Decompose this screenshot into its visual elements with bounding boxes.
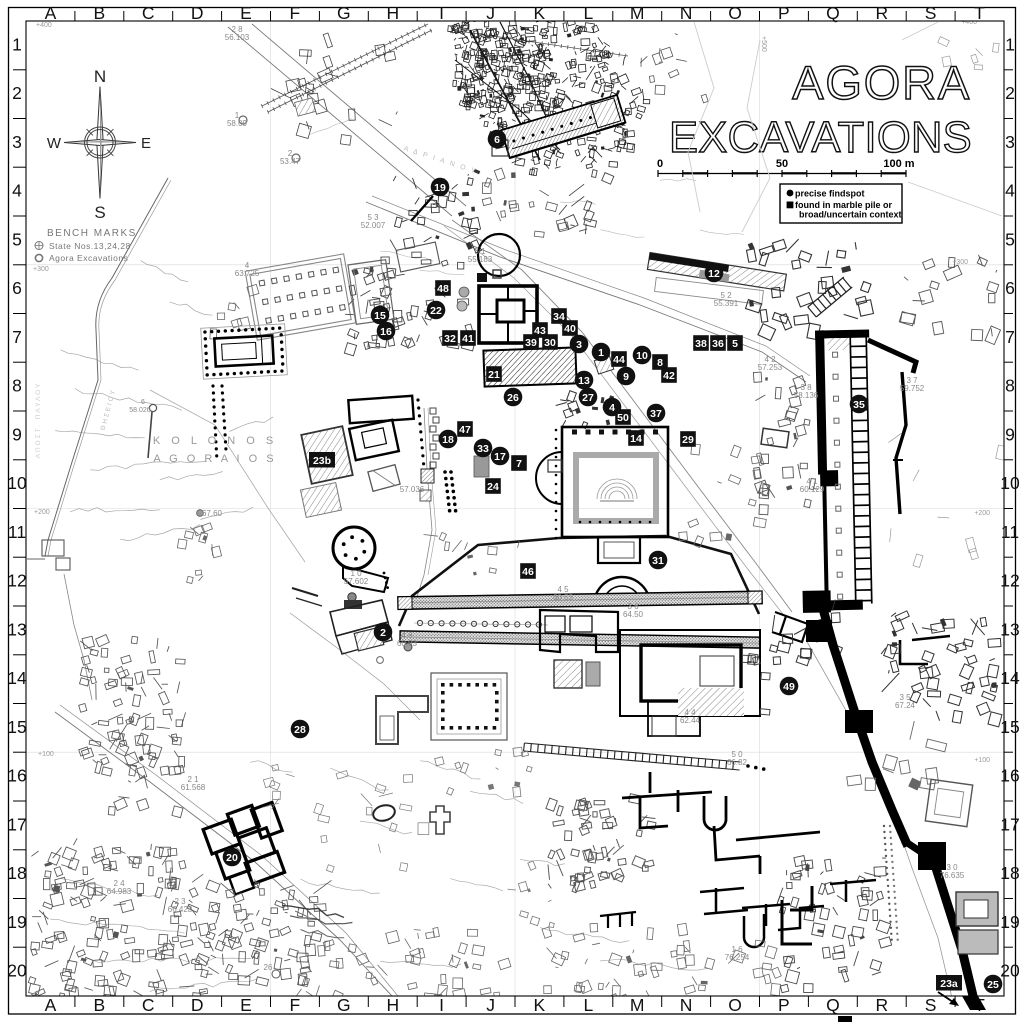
svg-text:4: 4 (609, 402, 615, 414)
svg-text:K O L O N O S: K O L O N O S (153, 435, 277, 447)
svg-text:12: 12 (1000, 571, 1019, 591)
svg-text:57.602: 57.602 (344, 577, 369, 586)
svg-text:E: E (240, 995, 252, 1015)
svg-text:broad/uncertain context: broad/uncertain context (799, 210, 902, 220)
svg-text:3: 3 (576, 339, 582, 351)
svg-text:+100: +100 (974, 757, 990, 764)
svg-text:41: 41 (462, 333, 474, 345)
svg-text:6: 6 (12, 278, 22, 298)
svg-text:67.60: 67.60 (202, 509, 223, 518)
svg-text:7: 7 (516, 458, 522, 470)
svg-text:I: I (439, 995, 444, 1015)
svg-text:23b: 23b (313, 455, 331, 467)
svg-text:16: 16 (1000, 766, 1019, 786)
svg-text:3: 3 (1005, 132, 1015, 152)
svg-text:+400: +400 (36, 22, 52, 29)
svg-text:55.183: 55.183 (468, 255, 493, 264)
svg-text:F: F (290, 3, 301, 23)
svg-text:7: 7 (12, 327, 22, 347)
svg-text:1: 1 (12, 34, 22, 54)
svg-text:+500: +500 (760, 36, 767, 52)
svg-text:A: A (45, 995, 57, 1015)
svg-text:14: 14 (7, 668, 27, 688)
svg-text:found in marble pile or: found in marble pile or (795, 200, 893, 210)
svg-text:46: 46 (522, 566, 534, 578)
svg-text:Q: Q (826, 3, 840, 23)
svg-text:27: 27 (582, 392, 594, 404)
svg-text:T: T (974, 3, 985, 23)
svg-text:63.725: 63.725 (235, 269, 260, 278)
svg-text:M: M (630, 3, 645, 23)
svg-text:D: D (191, 3, 204, 23)
svg-text:6: 6 (494, 134, 500, 146)
svg-text:19: 19 (7, 912, 26, 932)
svg-text:0: 0 (657, 158, 663, 170)
svg-text:18: 18 (442, 434, 454, 446)
svg-text:5: 5 (1005, 229, 1015, 249)
svg-text:4: 4 (1005, 181, 1015, 201)
svg-text:13: 13 (578, 375, 590, 387)
svg-text:A G O R A I O S: A G O R A I O S (153, 453, 276, 465)
svg-text:18: 18 (1000, 863, 1019, 883)
svg-text:D: D (191, 995, 204, 1015)
svg-text:20: 20 (226, 852, 238, 864)
svg-text:33: 33 (477, 443, 489, 455)
svg-text:61.568: 61.568 (181, 783, 206, 792)
svg-text:ΑΠΟΣΤ. ΠΑΥΛΟΥ: ΑΠΟΣΤ. ΠΑΥΛΟΥ (35, 382, 42, 459)
svg-text:+300: +300 (33, 266, 49, 273)
svg-text:S: S (925, 995, 937, 1015)
svg-text:26: 26 (264, 963, 273, 972)
svg-text:2: 2 (1005, 83, 1015, 103)
svg-text:2: 2 (12, 83, 22, 103)
svg-text:A: A (45, 3, 57, 23)
svg-text:20: 20 (1000, 961, 1020, 981)
svg-text:R: R (875, 995, 888, 1015)
svg-text:19: 19 (1000, 912, 1019, 932)
svg-text:+100: +100 (38, 751, 54, 758)
svg-text:20: 20 (7, 961, 27, 981)
svg-text:precise findspot: precise findspot (795, 189, 865, 199)
svg-text:10: 10 (7, 473, 27, 493)
svg-text:K: K (534, 3, 546, 23)
svg-text:22: 22 (430, 305, 442, 317)
svg-text:AGORA: AGORA (792, 56, 971, 109)
svg-text:37: 37 (650, 408, 662, 420)
svg-text:F: F (290, 995, 301, 1015)
svg-text:47: 47 (459, 424, 471, 436)
svg-text:J: J (486, 3, 495, 23)
svg-text:N: N (680, 3, 693, 23)
svg-text:56.103: 56.103 (225, 33, 250, 42)
svg-text:5: 5 (732, 338, 738, 350)
svg-text:M: M (630, 995, 645, 1015)
svg-text:+300: +300 (952, 259, 968, 266)
svg-text:14: 14 (1000, 668, 1020, 688)
svg-text:30: 30 (544, 337, 556, 349)
svg-text:State Nos.13,24,28: State Nos.13,24,28 (49, 241, 131, 251)
svg-text:64.983: 64.983 (107, 887, 132, 896)
svg-text:44: 44 (613, 354, 625, 366)
svg-text:Agora Excavations: Agora Excavations (49, 253, 128, 263)
svg-text:57.036: 57.036 (400, 485, 425, 494)
svg-text:5: 5 (12, 229, 22, 249)
svg-text:8: 8 (1005, 376, 1015, 396)
svg-text:28: 28 (294, 724, 306, 736)
svg-text:40: 40 (564, 323, 576, 335)
svg-text:G: G (337, 3, 351, 23)
svg-text:52.007: 52.007 (361, 221, 386, 230)
svg-text:17: 17 (494, 451, 506, 463)
svg-text:64.50: 64.50 (623, 610, 644, 619)
svg-text:39: 39 (525, 337, 537, 349)
svg-text:31: 31 (652, 555, 664, 567)
svg-text:17: 17 (7, 814, 26, 834)
svg-text:76.254: 76.254 (725, 953, 750, 962)
svg-text:35: 35 (853, 399, 865, 411)
svg-text:Q: Q (826, 995, 840, 1015)
svg-text:I: I (439, 3, 444, 23)
svg-text:6: 6 (1005, 278, 1015, 298)
svg-text:2: 2 (380, 627, 386, 639)
svg-text:7: 7 (1005, 327, 1015, 347)
svg-text:67.24: 67.24 (895, 701, 916, 710)
svg-text:50: 50 (776, 158, 788, 170)
svg-text:S: S (925, 3, 937, 23)
svg-text:66.82: 66.82 (727, 758, 748, 767)
svg-text:4: 4 (12, 181, 22, 201)
svg-text:R: R (875, 3, 888, 23)
svg-text:58.026: 58.026 (129, 407, 151, 414)
svg-text:19: 19 (434, 182, 446, 194)
svg-text:P: P (778, 995, 790, 1015)
svg-text:58.136: 58.136 (794, 391, 819, 400)
svg-text:15: 15 (374, 310, 386, 322)
svg-text:24: 24 (487, 481, 499, 493)
svg-text:8: 8 (12, 376, 22, 396)
svg-text:W: W (47, 135, 62, 152)
svg-text:C: C (142, 995, 155, 1015)
svg-text:EXCAVATIONS: EXCAVATIONS (669, 114, 972, 162)
svg-text:66.423: 66.423 (168, 905, 193, 914)
svg-text:26: 26 (507, 392, 519, 404)
svg-text:+200: +200 (974, 510, 990, 517)
svg-text:H: H (386, 3, 399, 23)
svg-text:+200: +200 (34, 509, 50, 516)
svg-text:55.391: 55.391 (714, 299, 739, 308)
svg-text:23a: 23a (940, 978, 958, 990)
svg-text:O: O (728, 995, 742, 1015)
svg-text:8: 8 (657, 357, 663, 369)
svg-text:16: 16 (380, 326, 392, 338)
svg-text:O: O (728, 3, 742, 23)
svg-text:18: 18 (7, 863, 26, 883)
svg-text:L: L (584, 3, 594, 23)
svg-text:H: H (386, 995, 399, 1015)
svg-text:1: 1 (1005, 34, 1015, 54)
svg-text:K: K (534, 995, 546, 1015)
svg-text:15: 15 (7, 717, 26, 737)
svg-text:60.93: 60.93 (397, 639, 418, 648)
svg-text:B: B (93, 3, 105, 23)
svg-text:11: 11 (1001, 522, 1019, 542)
svg-text:32: 32 (444, 333, 456, 345)
svg-text:11: 11 (8, 522, 26, 542)
svg-text:6: 6 (141, 399, 145, 406)
svg-text:1: 1 (598, 347, 604, 359)
svg-text:76.635: 76.635 (940, 871, 965, 880)
svg-text:15: 15 (1000, 717, 1019, 737)
svg-text:17: 17 (1000, 814, 1019, 834)
svg-text:58.09: 58.09 (227, 119, 248, 128)
svg-text:59.752: 59.752 (900, 384, 925, 393)
svg-text:25: 25 (987, 979, 999, 991)
svg-text:100 m: 100 m (883, 158, 914, 170)
svg-text:12: 12 (7, 571, 26, 591)
svg-text:C: C (142, 3, 155, 23)
svg-text:9: 9 (623, 371, 629, 383)
svg-text:J: J (486, 995, 495, 1015)
svg-text:42: 42 (663, 370, 675, 382)
svg-text:G: G (337, 995, 351, 1015)
svg-text:12: 12 (708, 268, 720, 280)
svg-text:E: E (240, 3, 252, 23)
svg-text:62.44: 62.44 (680, 716, 701, 725)
svg-text:S: S (94, 203, 105, 222)
svg-text:16: 16 (7, 766, 26, 786)
svg-text:21: 21 (488, 369, 500, 381)
svg-text:49: 49 (783, 681, 795, 693)
svg-text:57.253: 57.253 (758, 363, 783, 372)
svg-text:10: 10 (636, 350, 648, 362)
svg-text:L: L (584, 995, 594, 1015)
svg-text:29: 29 (682, 434, 694, 446)
svg-text:B: B (93, 995, 105, 1015)
svg-text:60.129: 60.129 (800, 485, 825, 494)
svg-text:36: 36 (712, 338, 724, 350)
svg-text:E: E (141, 135, 151, 152)
svg-text:P: P (778, 3, 790, 23)
svg-text:50: 50 (617, 412, 629, 424)
svg-text:N: N (94, 67, 106, 86)
svg-text:10: 10 (1000, 473, 1020, 493)
svg-text:BENCH MARKS: BENCH MARKS (47, 228, 137, 239)
svg-text:3: 3 (12, 132, 22, 152)
svg-text:9: 9 (12, 424, 22, 444)
svg-text:48: 48 (437, 283, 449, 295)
svg-text:60.53: 60.53 (553, 593, 574, 602)
svg-text:9: 9 (1005, 424, 1015, 444)
svg-text:N: N (680, 995, 693, 1015)
svg-text:38: 38 (695, 338, 707, 350)
svg-text:13: 13 (1000, 619, 1019, 639)
svg-text:13: 13 (7, 619, 26, 639)
svg-text:53.47: 53.47 (280, 157, 301, 166)
svg-text:14: 14 (630, 433, 642, 445)
